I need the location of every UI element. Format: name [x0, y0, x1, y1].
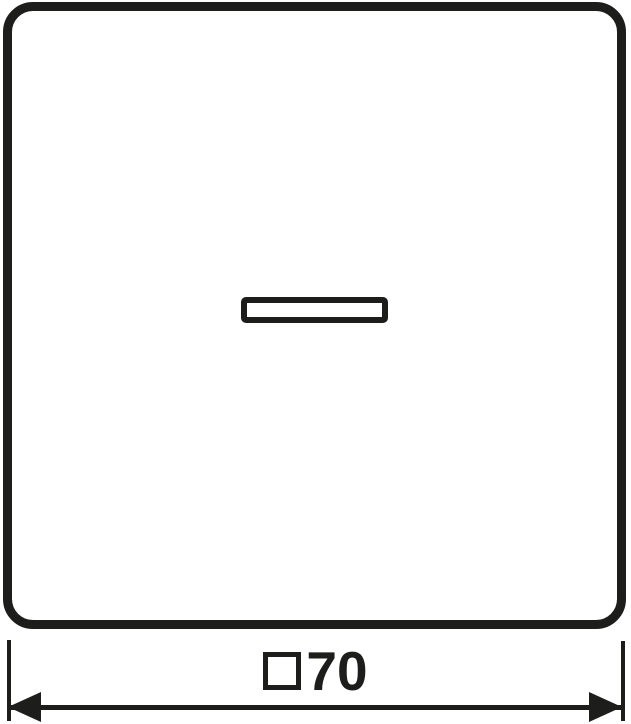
dimension-value: 70 [306, 650, 367, 692]
dimension-line [9, 705, 622, 710]
square-symbol-icon [263, 652, 301, 690]
dimension-label: 70 [0, 650, 631, 692]
dimension-arrow-right-icon [589, 692, 622, 722]
indicator-window [241, 297, 388, 323]
technical-drawing: 70 [0, 0, 631, 724]
dimension-arrow-left-icon [8, 692, 41, 722]
